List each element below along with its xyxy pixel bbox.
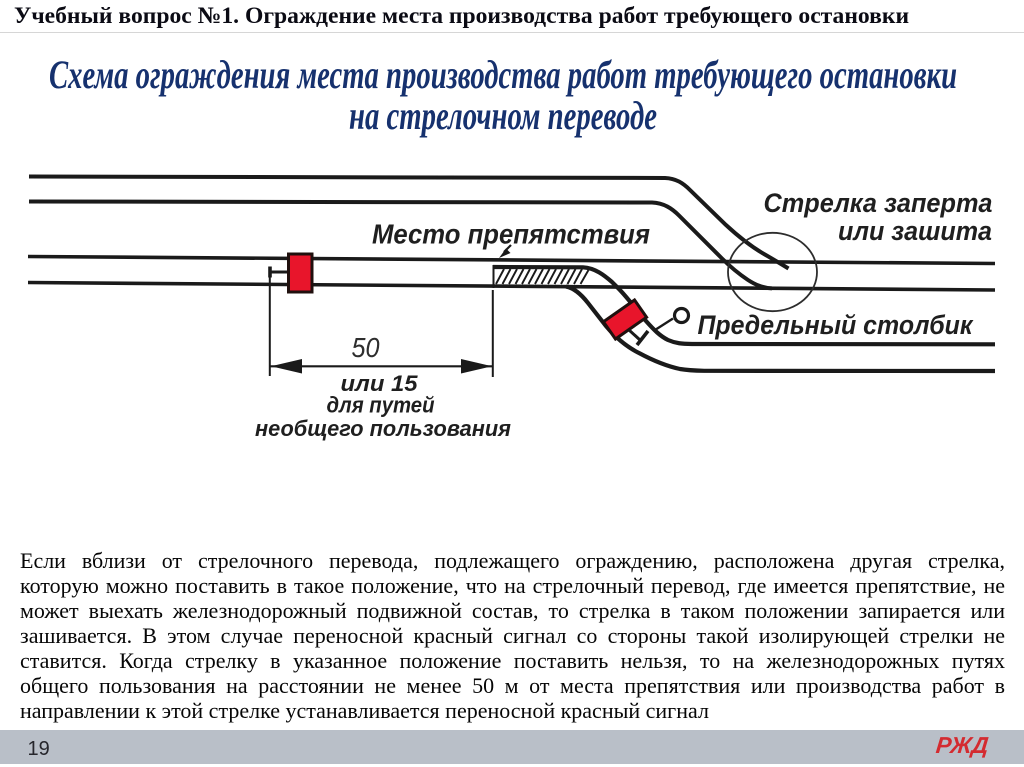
svg-text:Предельный столбик: Предельный столбик <box>698 310 974 340</box>
svg-text:необщего пользования: необщего пользования <box>255 416 511 441</box>
svg-text:Стрелка заперта: Стрелка заперта <box>764 188 993 218</box>
svg-text:для путей: для путей <box>327 393 436 418</box>
svg-text:Место препятствия: Место препятствия <box>372 219 650 250</box>
svg-text:50: 50 <box>352 332 380 363</box>
svg-text:или зашита: или зашита <box>838 216 992 246</box>
